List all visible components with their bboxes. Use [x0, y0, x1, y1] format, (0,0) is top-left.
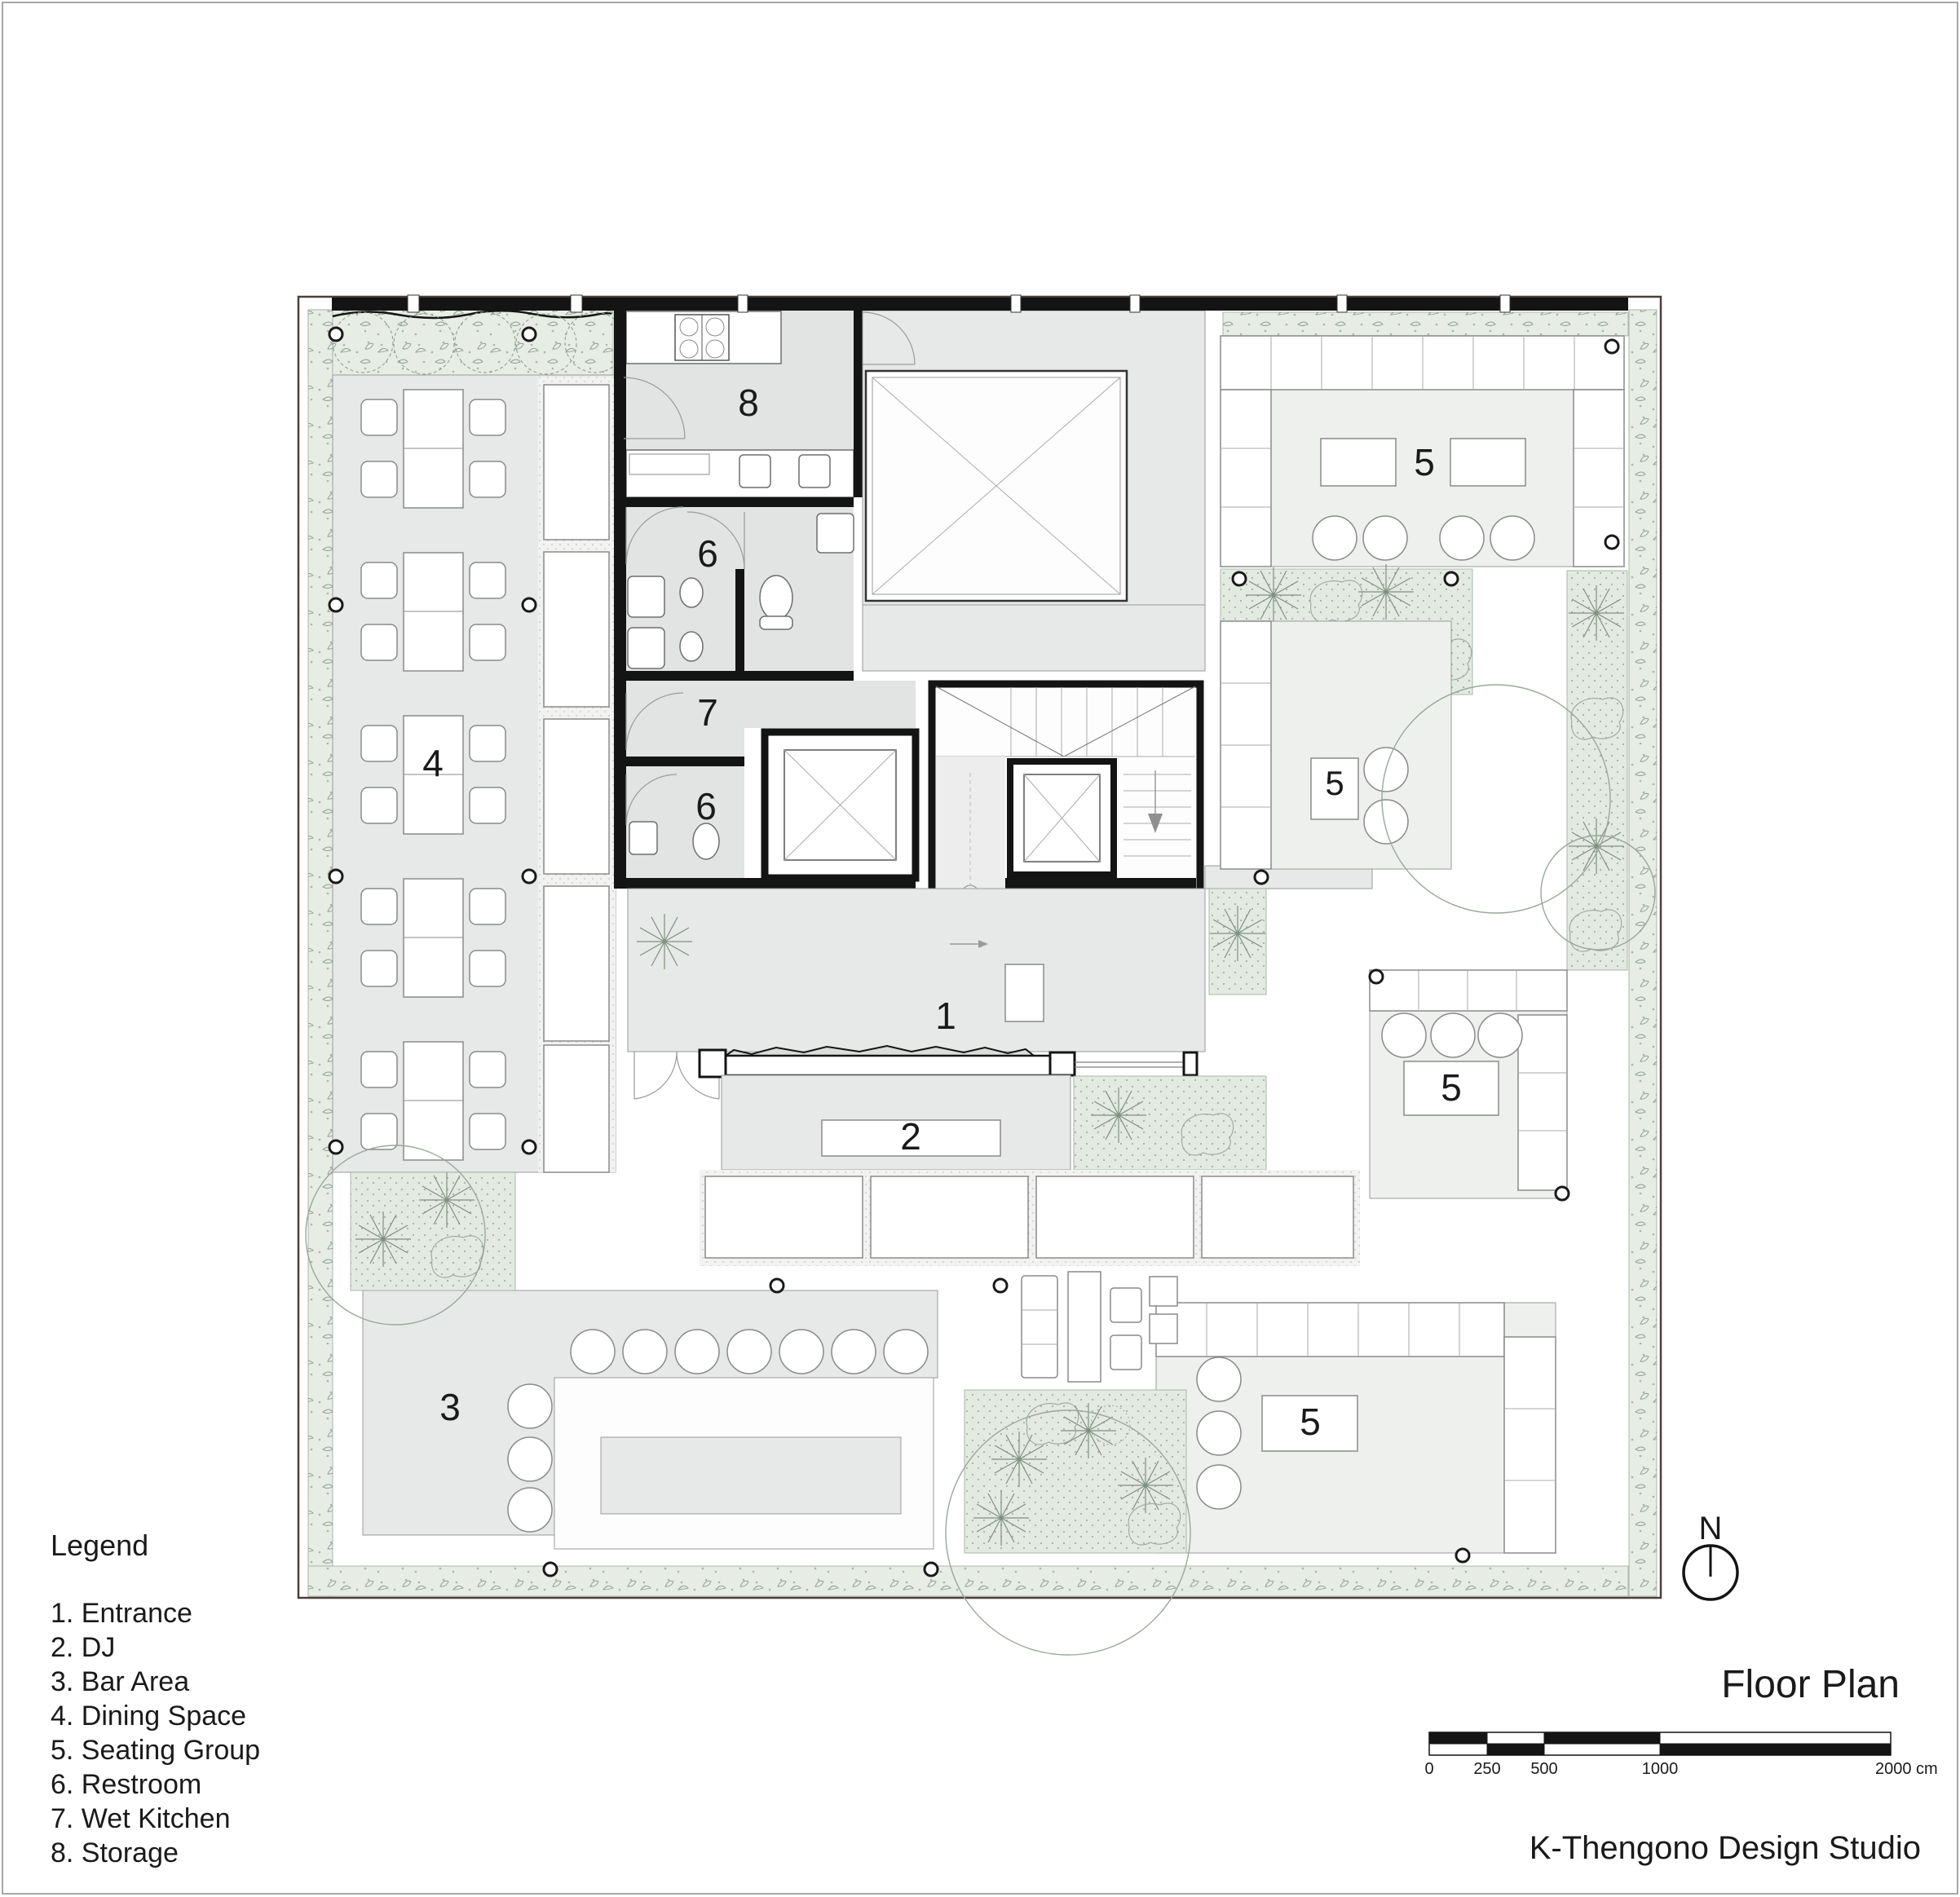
seat-stool [1440, 516, 1484, 560]
scale-tick: 0 [1424, 1760, 1433, 1778]
legend-item: 2. DJ [51, 1632, 115, 1663]
room-label-entrance: 1 [935, 995, 956, 1037]
seat-stool [1490, 516, 1534, 560]
north-arrow: N [1684, 1511, 1737, 1599]
studio-name: K-Thengono Design Studio [1530, 1830, 1921, 1866]
banquette-row [700, 1170, 1360, 1266]
sink-icon [629, 822, 657, 854]
restroom-upper: 6 [614, 450, 854, 681]
legend-item: 6. Restroom [51, 1769, 201, 1800]
seating-group-top-right: 5 [1221, 336, 1624, 567]
room-label-seating: 5 [1300, 1401, 1321, 1443]
seating-group-right-lower: 5 [1370, 970, 1567, 1198]
elevator-1 [765, 732, 916, 878]
sink-icon [628, 628, 664, 668]
toilet-icon [693, 823, 719, 859]
basin-icon [680, 632, 703, 661]
north-label: N [1699, 1511, 1723, 1546]
seat-stool [1197, 1411, 1241, 1455]
bar-stool [832, 1330, 876, 1374]
room-label-seating: 5 [1441, 1066, 1462, 1109]
legend-item: 4. Dining Space [51, 1701, 246, 1732]
lounge-table [1068, 1272, 1101, 1382]
basin-icon [680, 578, 703, 607]
planter-box [1074, 1076, 1266, 1170]
bar-area: 3 [363, 1290, 938, 1549]
sink-icon [799, 455, 830, 487]
legend-item: 8. Storage [51, 1837, 179, 1868]
back-bar [601, 1437, 901, 1514]
scale-tick: 500 [1530, 1760, 1557, 1778]
room-label-restroom: 6 [695, 785, 717, 827]
lounge-chair [1110, 1335, 1141, 1370]
sink-icon [739, 455, 770, 487]
sink-icon [628, 576, 664, 617]
legend-item: 3. Bar Area [51, 1666, 189, 1697]
scale-tick: 1000 [1642, 1760, 1679, 1778]
storage-room: 8 [626, 311, 854, 450]
planter-bench-column [538, 377, 616, 1172]
bar-stool [675, 1330, 719, 1374]
title-block: Floor Plan K-Thengono Design Studio [1530, 1663, 1921, 1866]
sofa [1022, 1276, 1057, 1378]
entrance-desk [1005, 964, 1044, 1021]
room-label-seating: 5 [1325, 764, 1344, 802]
elevator-2 [1010, 761, 1114, 875]
legend: Legend 1. Entrance 2. DJ 3. Bar Area 4. … [51, 1529, 260, 1868]
bar-stool [623, 1330, 667, 1374]
room-label-dj: 2 [900, 1115, 921, 1158]
bar-stool [571, 1330, 615, 1374]
room-label-storage: 8 [738, 382, 759, 424]
room-label-seating: 5 [1414, 441, 1435, 483]
bar-stool [779, 1330, 823, 1374]
seat-stool [1197, 1465, 1241, 1509]
seating-table [1450, 439, 1525, 486]
seating-table [1321, 439, 1396, 486]
seat-stool [1364, 800, 1408, 844]
room-label-dining: 4 [422, 742, 444, 784]
north-wall [332, 298, 1628, 311]
planter-box [965, 1390, 1186, 1553]
scale-tick: 250 [1473, 1760, 1500, 1778]
seat-stool [1478, 1013, 1522, 1057]
bar-stool [727, 1330, 771, 1374]
floor-plan-drawing: 4 8 [298, 295, 1661, 1655]
seat-stool [1363, 516, 1407, 560]
lounge-chair [1110, 1288, 1141, 1322]
planter-box [351, 1172, 515, 1290]
bar-stool [508, 1488, 552, 1532]
bar-stool [884, 1330, 928, 1374]
bar-stool [508, 1437, 552, 1481]
legend-item: 5. Seating Group [51, 1735, 260, 1766]
scale-bar: 0 250 500 1000 2000 cm [1424, 1732, 1937, 1778]
seating-group-bottom-right: 5 [1156, 1303, 1556, 1553]
seat-stool [1431, 1013, 1475, 1057]
legend-title: Legend [51, 1529, 148, 1562]
seat-stool [1197, 1357, 1241, 1401]
legend-item: 7. Wet Kitchen [51, 1803, 231, 1834]
seat-stool [1313, 516, 1357, 560]
toilet-icon [760, 576, 792, 620]
room-label-restroom: 6 [697, 532, 718, 575]
seat-stool [1382, 1013, 1426, 1057]
sheet-title: Floor Plan [1721, 1663, 1900, 1706]
room-label-bar: 3 [439, 1386, 461, 1428]
sink-icon [817, 514, 854, 553]
bar-stool [508, 1384, 552, 1428]
legend-item: 1. Entrance [51, 1598, 192, 1629]
floor-plan-sheet: 4 8 [0, 0, 1960, 1897]
scale-end-label: 2000 cm [1875, 1760, 1938, 1778]
room-label-wet-kitchen: 7 [697, 691, 718, 734]
seating-group-mid-right: 5 [1221, 621, 1451, 869]
